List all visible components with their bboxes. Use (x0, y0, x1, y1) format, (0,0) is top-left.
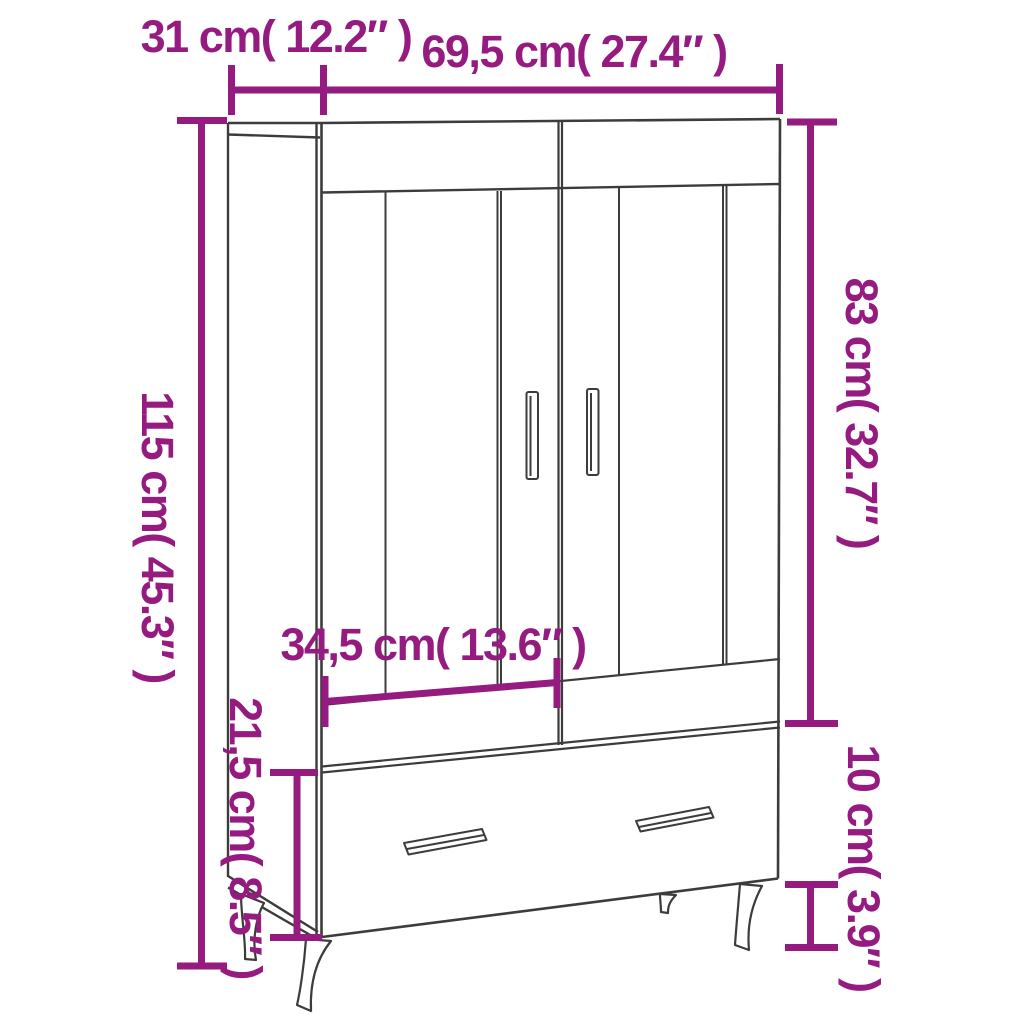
cabinet-drawing (228, 119, 780, 1011)
dim-line-total-height (177, 121, 227, 967)
dim-line-leg-height (785, 885, 838, 948)
dim-label-upper-height: 83 cm( 32.7″ ) (836, 278, 887, 549)
cabinet-dimension-drawing: 31 cm( 12.2″ ) 69,5 cm( 27.4″ ) 34,5 cm(… (0, 0, 1024, 1024)
dim-label-depth: 31 cm( 12.2″ ) (141, 11, 412, 62)
drawer-left-handle[interactable] (404, 829, 487, 855)
dim-label-leg-height: 10 cm( 3.9″ ) (838, 744, 889, 991)
dim-label-door-width: 34,5 cm( 13.6″ ) (280, 619, 585, 670)
drawer-right-handle[interactable] (636, 807, 714, 832)
left-door-handle[interactable] (527, 392, 539, 479)
right-door-handle[interactable] (587, 389, 599, 475)
dim-line-upper-height (785, 122, 838, 724)
front-left-leg (297, 939, 331, 1011)
dimension-diagram: 31 cm( 12.2″ ) 69,5 cm( 27.4″ ) 34,5 cm(… (0, 0, 1024, 1024)
dim-line-drawer-height (270, 773, 322, 938)
top-band-edge (322, 184, 780, 193)
dimension-lines (177, 64, 838, 966)
dim-label-width: 69,5 cm( 27.4″ ) (421, 26, 726, 77)
dim-label-total-height: 115 cm( 45.3″ ) (132, 391, 183, 683)
back-right-leg (660, 894, 676, 913)
drawer-top-edge (322, 722, 780, 773)
right-door[interactable] (619, 186, 727, 676)
front-right-leg (735, 884, 762, 950)
cabinet-legs (241, 884, 762, 1011)
dim-label-drawer-height: 21,5 cm( 8.5″ ) (220, 697, 271, 979)
